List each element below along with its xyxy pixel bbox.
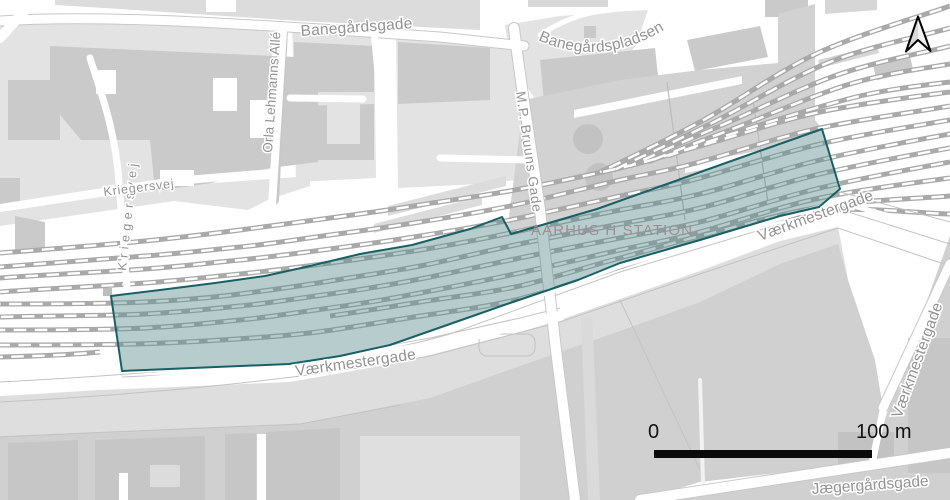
svg-text:0: 0 <box>648 421 659 443</box>
svg-text:AARHUS H STATION: AARHUS H STATION <box>531 222 693 239</box>
svg-text:100 m: 100 m <box>856 421 912 443</box>
